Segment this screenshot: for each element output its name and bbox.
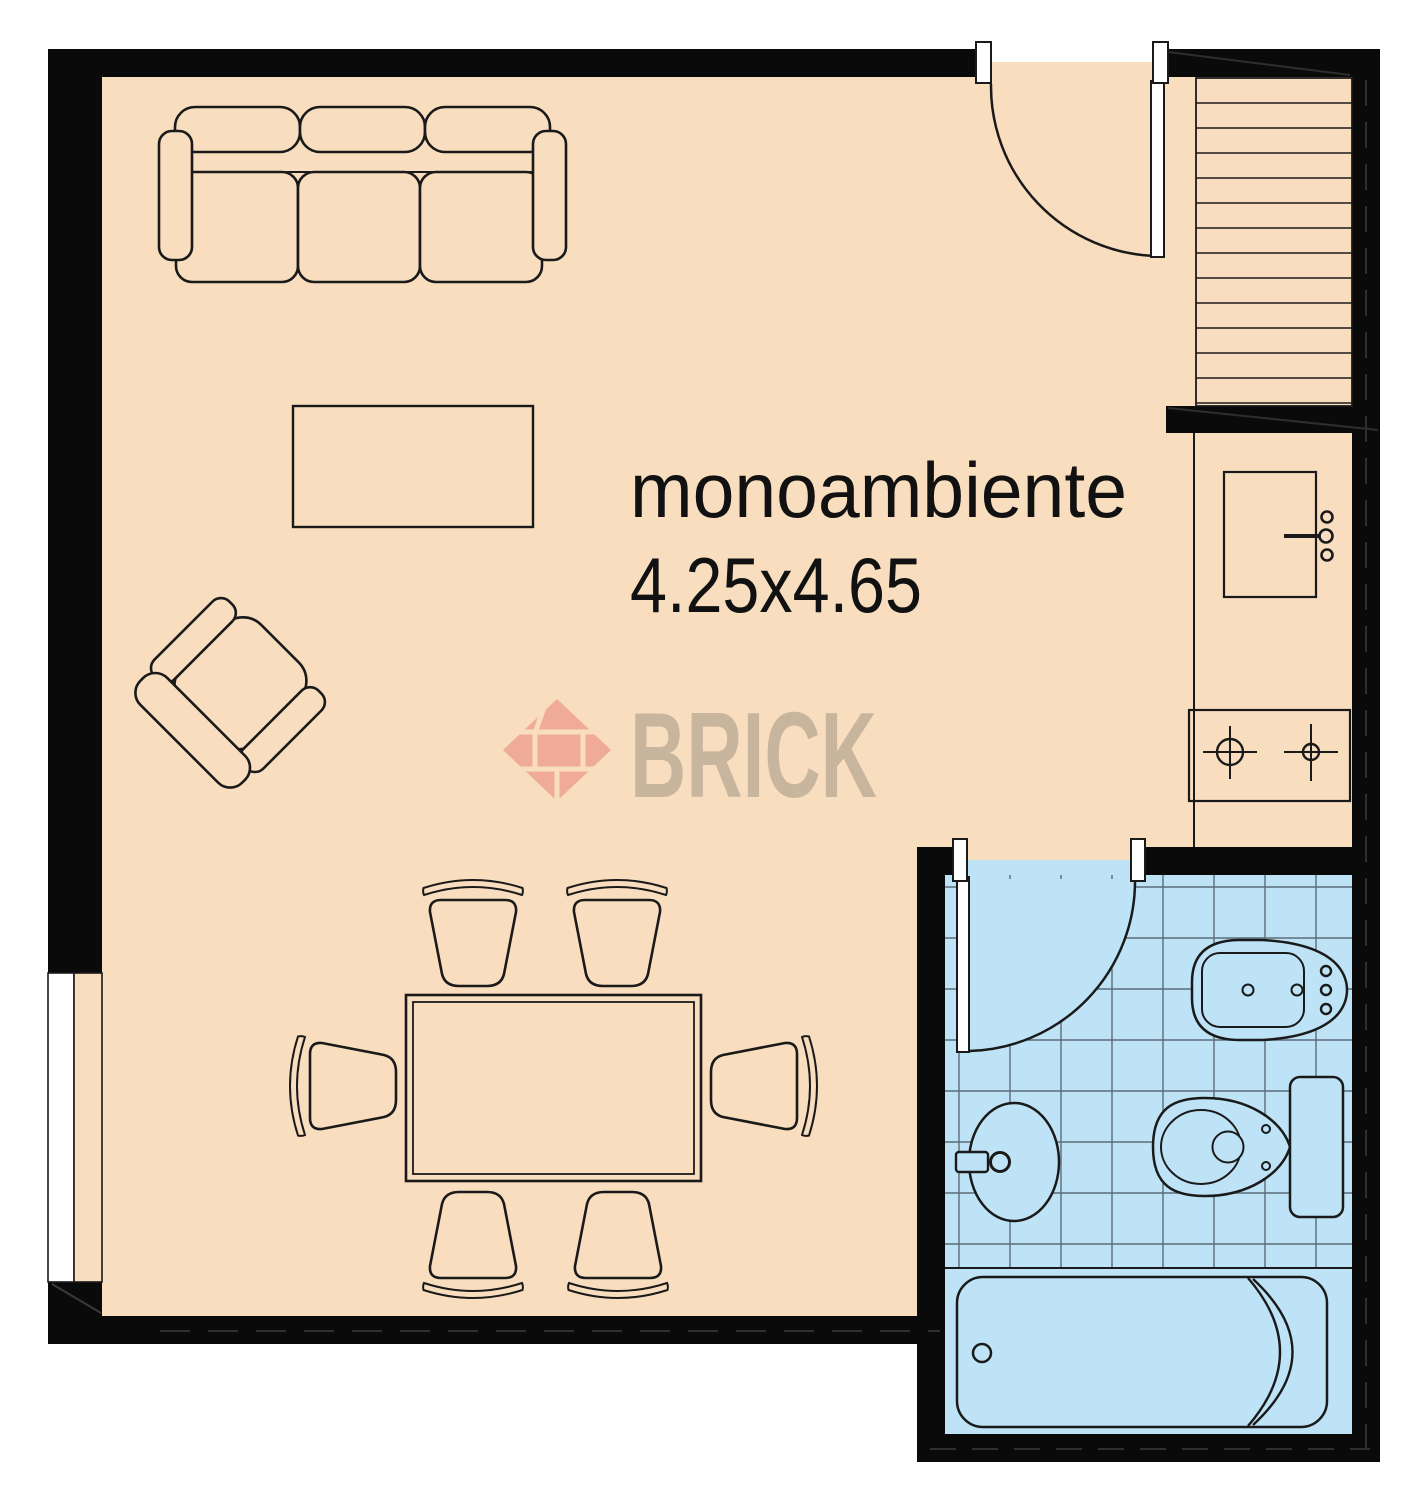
bathroom-faucet: [956, 1152, 988, 1172]
sofa-armrest-left: [159, 131, 192, 260]
watermark-text: BRICK: [630, 687, 877, 823]
wall-top-right: [1152, 49, 1380, 77]
bathroom-threshold: [957, 860, 1143, 875]
bathroom-door-leaf: [957, 877, 969, 1052]
toilet-tank: [1290, 1077, 1343, 1217]
floor-plan-drawing: BRICK monoambiente 4.25x4.65: [0, 0, 1424, 1500]
entrance-door-leaf: [1151, 81, 1164, 257]
room-name-label: monoambiente: [630, 446, 1127, 534]
sofa-armrest-right: [533, 131, 566, 260]
sofa-seat-cushion: [298, 172, 420, 282]
wall-top-left: [48, 49, 978, 77]
bathroom-door-jamb-left: [953, 839, 967, 881]
sofa-back-cushion: [425, 107, 550, 152]
bathtub: [957, 1277, 1327, 1427]
wall-bathroom-top-left: [917, 847, 957, 875]
toilet-flush: [1213, 1132, 1244, 1163]
bathroom-faucet-base: [991, 1153, 1010, 1172]
floor-plan: BRICK monoambiente 4.25x4.65: [0, 0, 1424, 1500]
wall-left-upper: [48, 77, 102, 973]
sofa-seat-cushion: [420, 172, 542, 282]
sofa: [159, 107, 566, 282]
window: [48, 973, 102, 1282]
wall-bathroom-top-right: [1143, 847, 1352, 875]
entrance-threshold: [978, 62, 1152, 77]
room-dimensions-label: 4.25x4.65: [630, 541, 922, 629]
bathroom-door-jamb-right: [1131, 839, 1145, 881]
sofa-back-cushion: [300, 107, 425, 152]
bidet: [1192, 940, 1347, 1040]
entrance-door-jamb-right: [1153, 42, 1168, 83]
wall-bathroom-left: [917, 847, 945, 1462]
dining-table: [406, 995, 701, 1181]
sofa-back-cushion: [175, 107, 300, 152]
kitchen-floor: [1194, 433, 1352, 847]
entrance-door-jamb-left: [976, 42, 991, 83]
sofa-seat-cushion: [176, 172, 298, 282]
